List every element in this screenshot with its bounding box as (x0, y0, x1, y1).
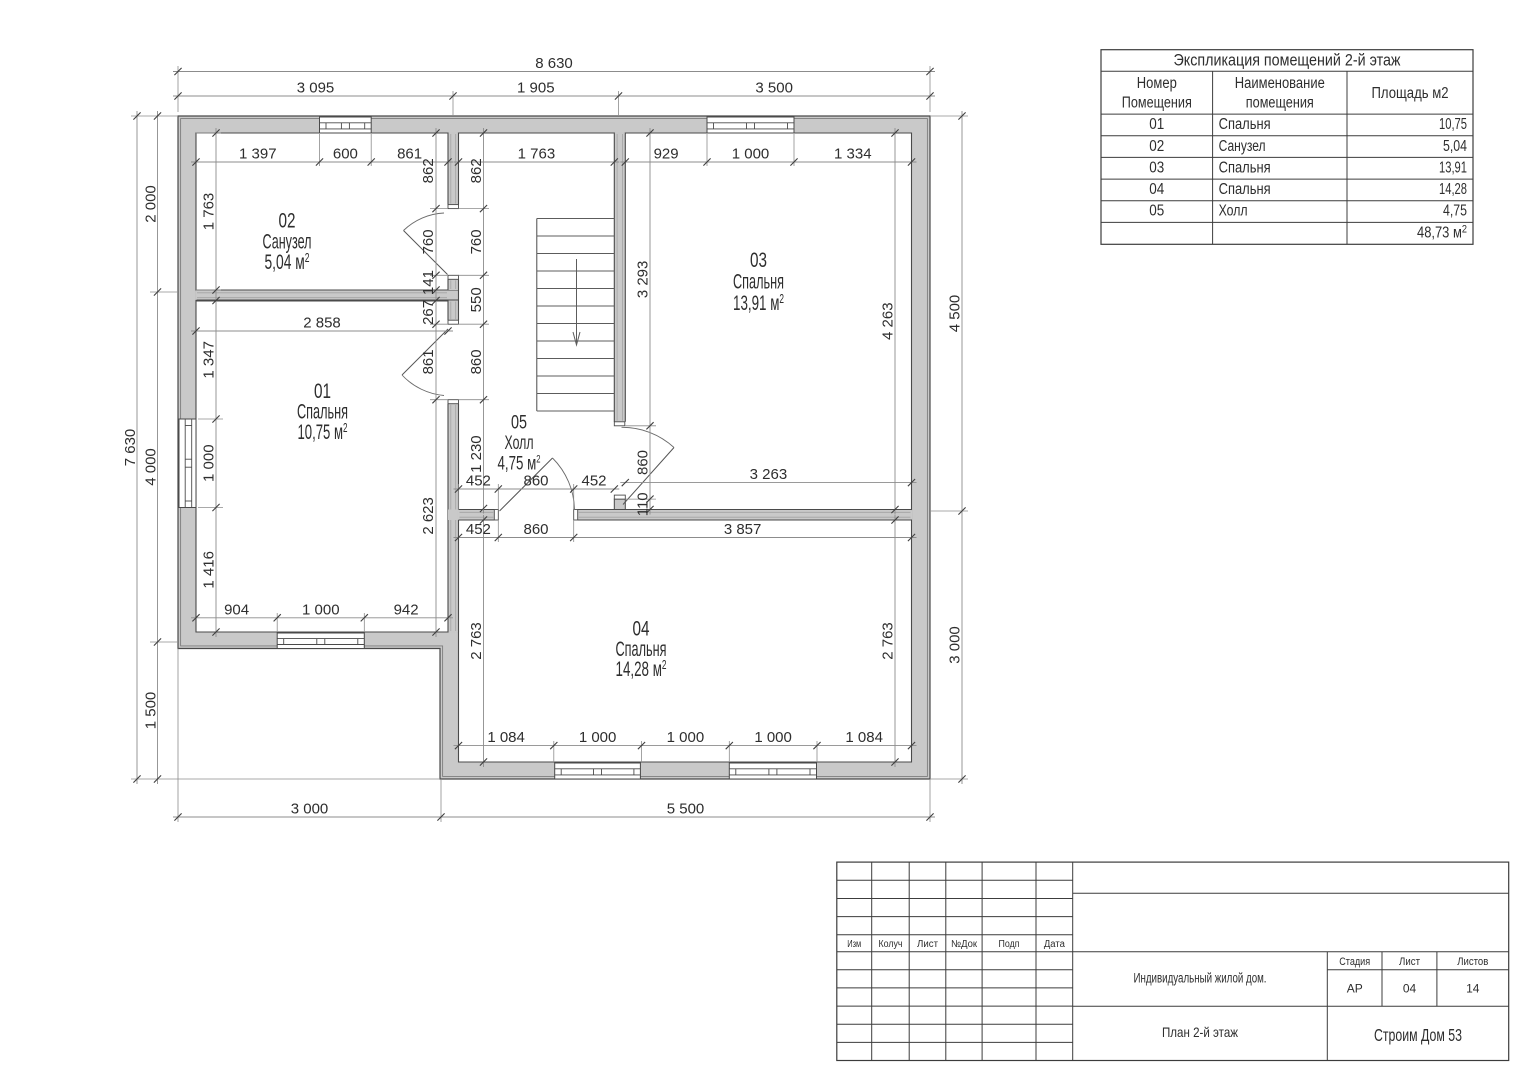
svg-text:05: 05 (1149, 203, 1164, 220)
svg-text:452: 452 (581, 473, 606, 490)
svg-text:04: 04 (1149, 181, 1164, 198)
svg-text:10,75: 10,75 (1439, 116, 1467, 133)
svg-text:1 763: 1 763 (201, 193, 218, 231)
svg-text:Листов: Листов (1457, 956, 1488, 968)
svg-text:13,91 м2: 13,91 м2 (733, 291, 784, 315)
svg-text:4 263: 4 263 (879, 302, 896, 340)
svg-text:4,75: 4,75 (1443, 203, 1467, 220)
svg-text:600: 600 (333, 146, 358, 163)
svg-text:7 630: 7 630 (122, 429, 139, 467)
svg-text:03: 03 (750, 249, 767, 272)
svg-text:3 500: 3 500 (755, 80, 793, 97)
svg-text:Спальня: Спальня (1219, 181, 1271, 198)
svg-text:860: 860 (468, 349, 485, 374)
svg-text:14: 14 (1466, 982, 1480, 996)
svg-text:452: 452 (466, 521, 491, 538)
svg-text:Колуч: Колуч (879, 939, 903, 950)
svg-text:860: 860 (635, 450, 652, 475)
svg-text:4 000: 4 000 (142, 448, 159, 486)
svg-text:02: 02 (1149, 138, 1164, 155)
svg-text:550: 550 (468, 287, 485, 312)
svg-text:Спальня: Спальня (1219, 116, 1271, 133)
svg-text:02: 02 (279, 210, 296, 233)
svg-text:4 500: 4 500 (947, 295, 964, 333)
svg-text:48,73 м2: 48,73 м2 (1417, 223, 1467, 241)
svg-text:Холл: Холл (1219, 203, 1248, 220)
svg-text:5,04 м2: 5,04 м2 (265, 250, 310, 274)
svg-text:862: 862 (468, 158, 485, 183)
svg-text:05: 05 (511, 413, 527, 434)
svg-text:04: 04 (1403, 982, 1417, 996)
svg-text:Лист: Лист (917, 939, 938, 950)
svg-text:1 084: 1 084 (487, 729, 525, 746)
svg-text:АР: АР (1347, 982, 1363, 996)
svg-text:13,91: 13,91 (1439, 159, 1467, 176)
svg-text:860: 860 (523, 473, 548, 490)
svg-text:1 763: 1 763 (518, 146, 556, 163)
svg-text:1 500: 1 500 (142, 692, 159, 730)
svg-text:Наименование: Наименование (1235, 75, 1325, 92)
svg-text:Холл: Холл (505, 433, 534, 454)
svg-text:2 763: 2 763 (468, 622, 485, 660)
svg-text:5 500: 5 500 (667, 801, 705, 818)
svg-text:03: 03 (1149, 159, 1164, 176)
svg-text:760: 760 (420, 229, 437, 254)
svg-text:3 000: 3 000 (947, 626, 964, 664)
svg-text:8 630: 8 630 (535, 55, 573, 72)
svg-text:1 000: 1 000 (201, 444, 218, 482)
svg-text:План 2-й этаж: План 2-й этаж (1162, 1024, 1239, 1040)
svg-text:01: 01 (1149, 116, 1164, 133)
svg-text:1 000: 1 000 (667, 729, 705, 746)
svg-text:267: 267 (420, 300, 437, 325)
svg-text:Спальня: Спальня (1219, 159, 1271, 176)
svg-text:1 905: 1 905 (517, 80, 555, 97)
svg-text:1 230: 1 230 (468, 435, 485, 473)
svg-text:904: 904 (224, 601, 249, 618)
svg-text:3 263: 3 263 (750, 466, 788, 483)
svg-text:110: 110 (635, 492, 652, 516)
svg-text:942: 942 (394, 601, 419, 618)
svg-text:452: 452 (466, 473, 491, 490)
svg-text:1 000: 1 000 (579, 729, 617, 746)
svg-text:1 347: 1 347 (201, 341, 218, 379)
svg-text:Санузел: Санузел (1219, 138, 1266, 155)
svg-text:Подп: Подп (999, 939, 1020, 950)
svg-text:862: 862 (420, 158, 437, 183)
svg-text:1 000: 1 000 (302, 601, 340, 618)
svg-text:3 095: 3 095 (297, 80, 335, 97)
svg-text:5,04: 5,04 (1443, 138, 1467, 155)
svg-text:Изм: Изм (847, 939, 861, 950)
svg-text:Дата: Дата (1044, 939, 1065, 950)
svg-text:861: 861 (397, 146, 422, 163)
svg-text:14,28 м2: 14,28 м2 (616, 657, 667, 681)
svg-text:2 763: 2 763 (879, 622, 896, 660)
svg-text:929: 929 (654, 146, 679, 163)
svg-text:3 000: 3 000 (291, 801, 329, 818)
svg-text:Экспликация помещений 2-й этаж: Экспликация помещений 2-й этаж (1174, 52, 1401, 70)
svg-text:1 334: 1 334 (834, 146, 872, 163)
svg-text:860: 860 (523, 521, 548, 538)
svg-text:1 000: 1 000 (732, 146, 770, 163)
svg-text:Строим Дом 53: Строим Дом 53 (1374, 1025, 1462, 1045)
svg-text:10,75 м2: 10,75 м2 (298, 420, 348, 444)
svg-text:Номер: Номер (1137, 75, 1177, 92)
svg-text:1 084: 1 084 (845, 729, 883, 746)
svg-text:Площадь м2: Площадь м2 (1372, 85, 1449, 102)
svg-text:Индивидуальный жилой дом.: Индивидуальный жилой дом. (1134, 971, 1267, 986)
svg-text:14,28: 14,28 (1439, 181, 1467, 198)
svg-text:Спальня: Спальня (297, 401, 348, 424)
svg-text:Лист: Лист (1399, 956, 1420, 968)
svg-text:1 000: 1 000 (754, 729, 792, 746)
svg-text:01: 01 (314, 380, 331, 403)
svg-text:2 858: 2 858 (303, 315, 341, 332)
svg-text:2 000: 2 000 (142, 185, 159, 223)
svg-text:Помещения: Помещения (1122, 95, 1192, 112)
svg-text:3 293: 3 293 (635, 261, 652, 299)
svg-text:861: 861 (420, 349, 437, 374)
svg-text:1 397: 1 397 (239, 146, 277, 163)
svg-text:помещения: помещения (1246, 95, 1314, 112)
svg-text:1 416: 1 416 (201, 551, 218, 589)
svg-text:3 857: 3 857 (724, 521, 762, 538)
svg-text:760: 760 (468, 229, 485, 254)
svg-text:141: 141 (420, 270, 437, 295)
svg-text:2 623: 2 623 (420, 497, 437, 535)
svg-text:№Док: №Док (951, 939, 978, 950)
svg-text:Стадия: Стадия (1339, 956, 1370, 968)
svg-text:Спальня: Спальня (733, 270, 784, 293)
